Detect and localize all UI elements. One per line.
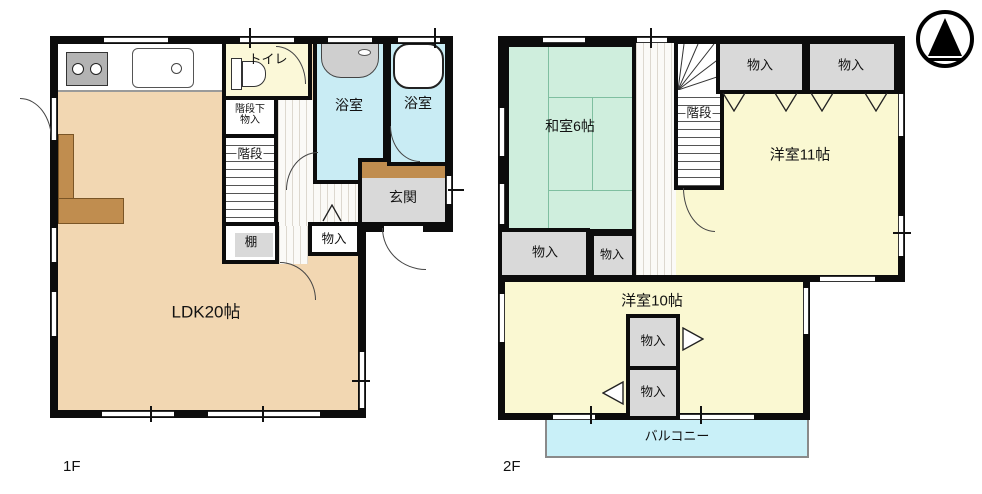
dimension-tick bbox=[650, 28, 652, 48]
window bbox=[820, 276, 875, 282]
window bbox=[51, 228, 57, 262]
north-arrow-base bbox=[927, 58, 963, 61]
room-label-storage-top-left: 物入 bbox=[747, 59, 773, 74]
window bbox=[680, 414, 754, 420]
room-label-stairs-2f: 階段 bbox=[685, 106, 712, 120]
kitchen-island-counter bbox=[58, 198, 124, 224]
stair-winder-icon bbox=[678, 44, 720, 90]
room-label-shelf: 棚 bbox=[245, 235, 258, 249]
window bbox=[543, 37, 585, 43]
dimension-tick bbox=[352, 380, 370, 382]
folding-door-chevron-icon bbox=[774, 92, 798, 112]
window bbox=[898, 94, 904, 136]
door-swing-arc bbox=[20, 98, 52, 140]
dimension-tick bbox=[448, 189, 464, 191]
dimension-tick bbox=[893, 232, 911, 234]
drain-icon bbox=[171, 63, 182, 74]
sink-icon bbox=[132, 48, 194, 88]
room-label-storage-1f: 物入 bbox=[321, 232, 346, 246]
window bbox=[803, 288, 809, 334]
window bbox=[499, 294, 505, 342]
window bbox=[51, 292, 57, 336]
room-label-balcony: バルコニー bbox=[645, 430, 710, 445]
room-label-storage-left-outer: 物入 bbox=[532, 246, 558, 261]
room-label-storage-left-inner: 物入 bbox=[600, 248, 624, 261]
room-label-japanese: 和室6帖 bbox=[545, 119, 595, 135]
room-label-storage-mid-lower: 物入 bbox=[640, 385, 665, 399]
room-label-bath-left: 浴室 bbox=[335, 98, 363, 114]
tatami-line bbox=[548, 97, 632, 98]
window bbox=[499, 108, 505, 156]
floor1-label: 1F bbox=[63, 458, 81, 475]
folding-door-chevron-icon bbox=[722, 92, 746, 112]
folding-door-chevron-icon bbox=[810, 92, 834, 112]
window bbox=[51, 98, 57, 140]
toilet-icon bbox=[231, 58, 242, 90]
room-label-storage-mid-upper: 物入 bbox=[640, 334, 665, 348]
window bbox=[208, 411, 320, 417]
window bbox=[328, 37, 372, 43]
window bbox=[499, 184, 505, 224]
tatami-line bbox=[592, 98, 593, 190]
hallway-1f-stub bbox=[279, 226, 308, 264]
bathtub-icon bbox=[393, 43, 444, 89]
stair-steps bbox=[678, 90, 720, 186]
window bbox=[898, 216, 904, 256]
stove-icon bbox=[66, 52, 108, 86]
basin-drain-icon bbox=[358, 49, 371, 56]
room-label-western-10: 洋室10帖 bbox=[621, 294, 683, 311]
wall-segment bbox=[358, 224, 384, 232]
dimension-tick bbox=[700, 406, 702, 424]
north-arrow-icon bbox=[916, 10, 974, 68]
closet-door-triangle-icon bbox=[682, 326, 704, 352]
dimension-tick bbox=[434, 28, 436, 48]
window bbox=[102, 411, 174, 417]
dimension-tick bbox=[249, 28, 251, 48]
understair-line2: 物入 bbox=[240, 115, 260, 126]
floorplan-canvas: トイレ 浴室 浴室 階段下 物入 階段 玄関 棚 物入 LDK20帖 1F bbox=[0, 0, 982, 494]
room-label-bath-right: 浴室 bbox=[404, 96, 432, 112]
floor2-label: 2F bbox=[503, 458, 521, 475]
japanese-room bbox=[505, 43, 636, 233]
room-label-toilet: トイレ bbox=[248, 53, 287, 68]
dimension-tick bbox=[150, 406, 152, 422]
window bbox=[553, 414, 595, 420]
dimension-tick bbox=[590, 406, 592, 424]
tatami-line bbox=[548, 47, 549, 229]
window bbox=[637, 37, 667, 43]
folding-door-chevron-icon bbox=[322, 204, 342, 222]
room-label-entrance: 玄関 bbox=[389, 190, 417, 206]
room-label-storage-top-right: 物入 bbox=[838, 59, 864, 74]
tatami-line bbox=[548, 190, 632, 191]
door-swing-arc bbox=[382, 228, 426, 270]
room-label-western-11: 洋室11帖 bbox=[770, 148, 831, 165]
dimension-tick bbox=[262, 406, 264, 422]
wall-segment bbox=[423, 224, 453, 232]
room-label-understair: 階段下 物入 bbox=[235, 104, 265, 126]
burner-icon bbox=[90, 63, 102, 75]
hallway-1f-horizontal bbox=[278, 184, 358, 226]
understair-line1: 階段下 bbox=[235, 104, 265, 115]
hallway-2f bbox=[636, 43, 676, 275]
room-label-ldk: LDK20帖 bbox=[172, 302, 241, 321]
folding-door-chevron-icon bbox=[864, 92, 888, 112]
window bbox=[104, 37, 168, 43]
wall-segment bbox=[50, 36, 58, 418]
closet-door-triangle-icon bbox=[602, 380, 624, 406]
north-arrow-triangle bbox=[928, 18, 962, 56]
washbasin-icon bbox=[321, 42, 379, 78]
burner-icon bbox=[72, 63, 84, 75]
room-label-stairs-1f: 階段 bbox=[236, 147, 263, 161]
